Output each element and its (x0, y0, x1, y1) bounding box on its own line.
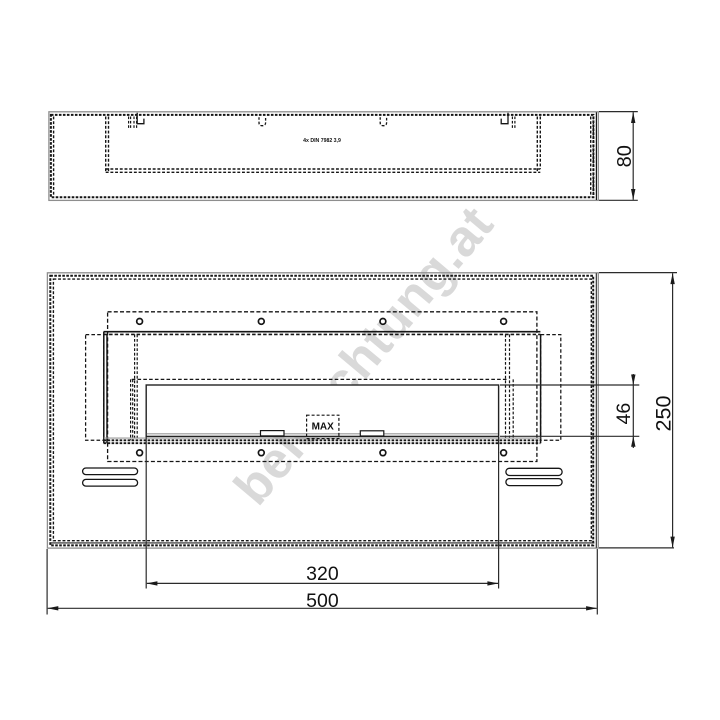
svg-text:500: 500 (306, 590, 339, 612)
svg-text:46: 46 (613, 403, 635, 425)
svg-text:4x DIN 7982 3,9: 4x DIN 7982 3,9 (303, 138, 341, 144)
svg-text:80: 80 (614, 145, 636, 167)
svg-text:250: 250 (651, 396, 675, 432)
svg-text:MAX: MAX (312, 421, 335, 432)
svg-text:320: 320 (306, 563, 339, 585)
